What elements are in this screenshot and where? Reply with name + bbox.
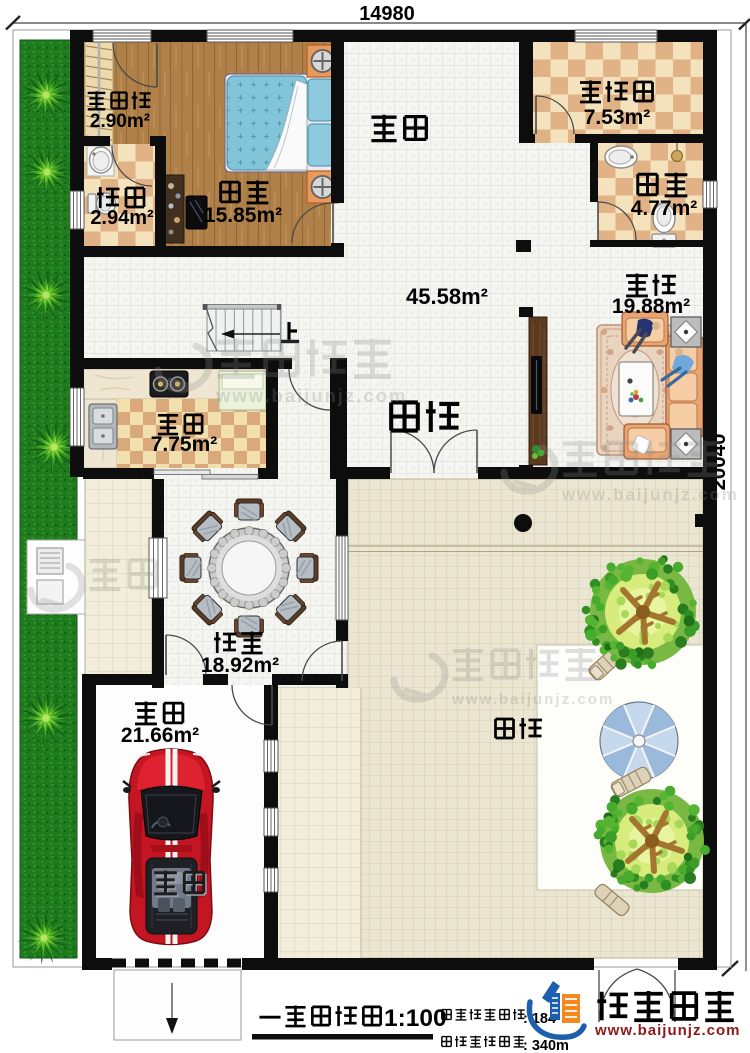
svg-text:7.53m²: 7.53m² xyxy=(584,106,651,129)
svg-text:www.baijunjz.com: www.baijunjz.com xyxy=(561,485,739,504)
svg-text:15.85m²: 15.85m² xyxy=(204,204,282,227)
svg-text:: 340m: : 340m xyxy=(523,1038,569,1053)
svg-text:www.baijunjz.com: www.baijunjz.com xyxy=(594,1022,740,1039)
svg-text:4.77m²: 4.77m² xyxy=(631,197,698,220)
svg-text:14980: 14980 xyxy=(359,3,415,25)
svg-text:7.75m²: 7.75m² xyxy=(151,433,218,456)
svg-text:18.92m²: 18.92m² xyxy=(201,654,279,677)
svg-text:www.baijunjz.com: www.baijunjz.com xyxy=(451,691,614,708)
svg-text:21.66m²: 21.66m² xyxy=(121,724,199,747)
svg-text:45.58m²: 45.58m² xyxy=(406,284,488,309)
svg-text:2.94m²: 2.94m² xyxy=(90,207,154,229)
svg-text:2.90m²: 2.90m² xyxy=(90,111,150,132)
svg-text:www.baijunjz.com: www.baijunjz.com xyxy=(215,385,407,406)
svg-text:19.88m²: 19.88m² xyxy=(612,295,690,318)
svg-text:1:100: 1:100 xyxy=(384,1005,447,1032)
